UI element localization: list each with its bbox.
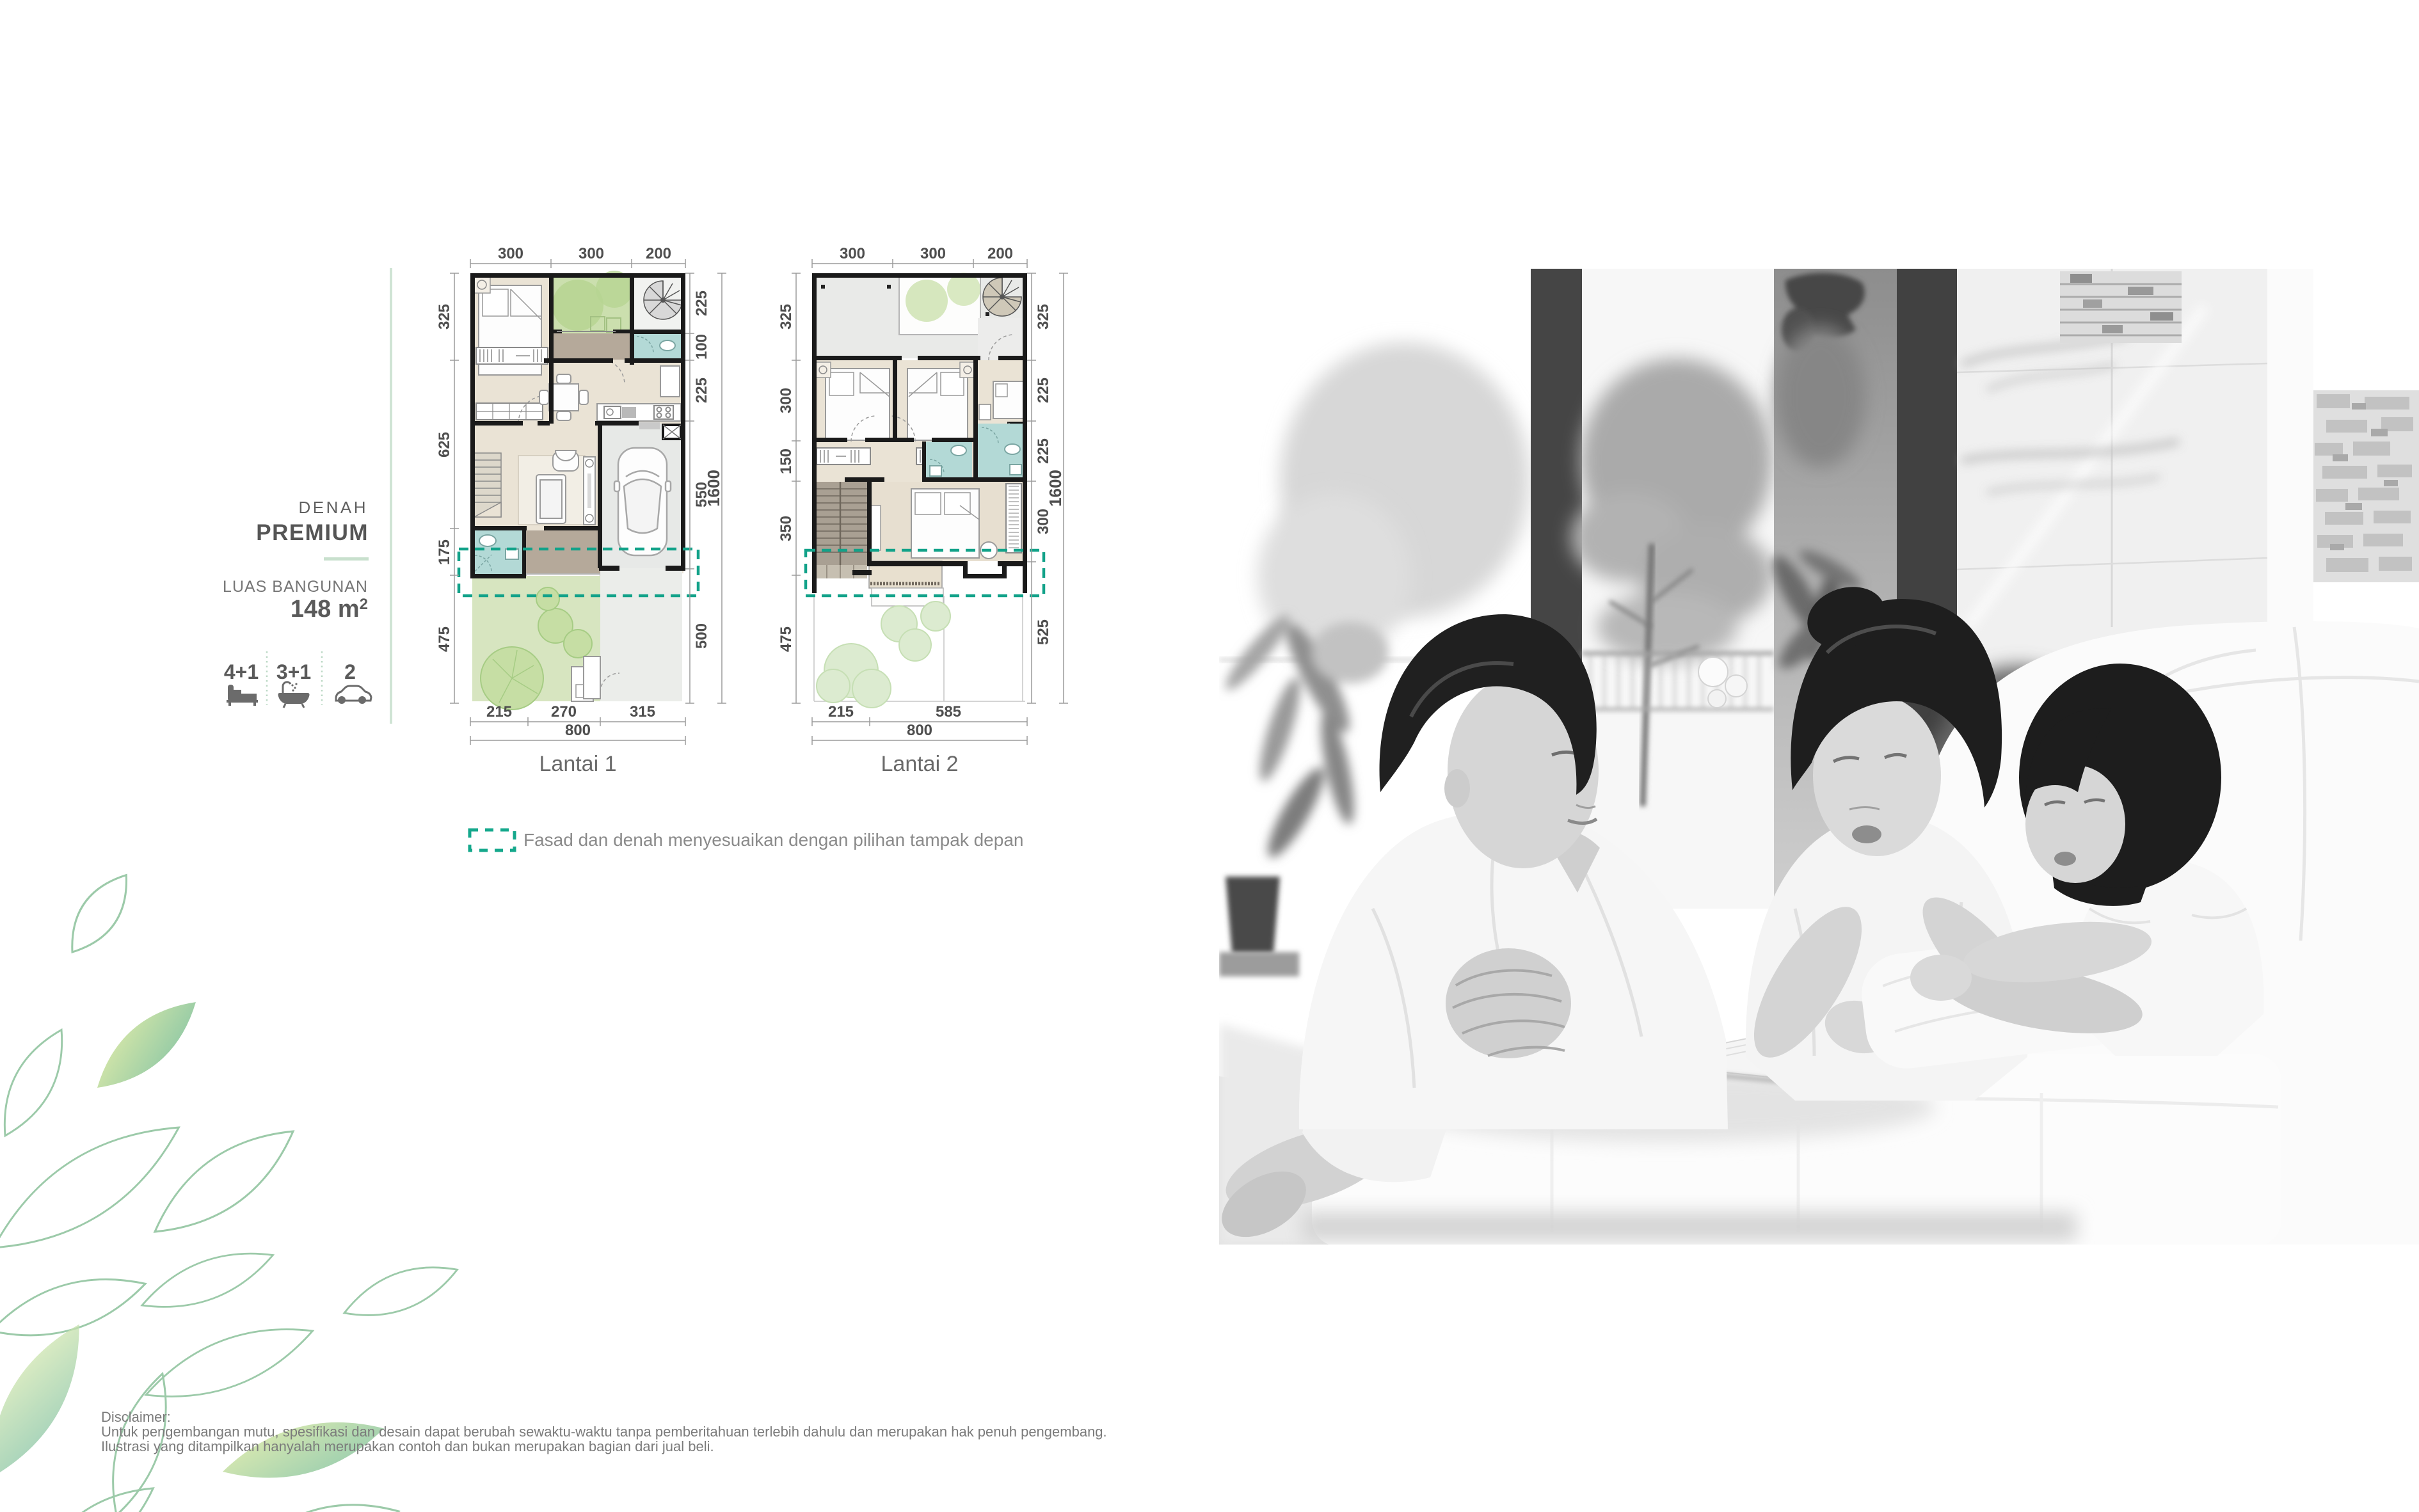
svg-text:Disclaimer:: Disclaimer: (101, 1409, 171, 1425)
svg-text:100: 100 (693, 334, 710, 360)
svg-text:525: 525 (1035, 619, 1052, 645)
svg-text:1600: 1600 (704, 470, 723, 507)
svg-text:2: 2 (344, 660, 356, 683)
svg-text:175: 175 (436, 539, 453, 565)
svg-text:Lantai 2: Lantai 2 (881, 752, 959, 776)
svg-text:225: 225 (693, 290, 710, 316)
svg-text:Ilustrasi yang ditampilkan han: Ilustrasi yang ditampilkan hanyalah meru… (101, 1438, 714, 1454)
svg-text:300: 300 (840, 245, 865, 262)
svg-text:4+1: 4+1 (224, 660, 259, 683)
svg-text:DENAH: DENAH (298, 498, 368, 517)
svg-text:148 m2: 148 m2 (291, 596, 368, 623)
svg-text:800: 800 (565, 722, 591, 739)
svg-text:625: 625 (436, 432, 453, 458)
svg-text:150: 150 (778, 449, 795, 474)
svg-text:315: 315 (630, 703, 655, 720)
svg-text:3+1: 3+1 (276, 660, 311, 683)
svg-text:300: 300 (1035, 509, 1052, 534)
svg-text:325: 325 (778, 304, 795, 330)
svg-text:225: 225 (1035, 378, 1052, 403)
svg-text:300: 300 (920, 245, 946, 262)
svg-text:Lantai 1: Lantai 1 (539, 752, 617, 776)
svg-text:350: 350 (778, 516, 795, 541)
svg-text:300: 300 (778, 388, 795, 413)
svg-text:225: 225 (693, 378, 710, 403)
svg-text:325: 325 (1035, 304, 1052, 330)
svg-text:200: 200 (987, 245, 1013, 262)
svg-text:200: 200 (646, 245, 671, 262)
svg-text:215: 215 (828, 703, 854, 720)
svg-text:Untuk pengembangan mutu, spesi: Untuk pengembangan mutu, spesifikasi dan… (101, 1424, 1107, 1440)
svg-text:475: 475 (436, 626, 453, 652)
svg-text:800: 800 (907, 722, 932, 739)
svg-text:Fasad dan denah menyesuaikan d: Fasad dan denah menyesuaikan dengan pili… (523, 830, 1023, 850)
svg-text:1600: 1600 (1046, 470, 1065, 507)
svg-text:325: 325 (436, 304, 453, 330)
svg-text:475: 475 (778, 626, 795, 652)
svg-text:300: 300 (498, 245, 523, 262)
svg-text:225: 225 (1035, 438, 1052, 464)
svg-text:270: 270 (551, 703, 577, 720)
svg-text:LUAS BANGUNAN: LUAS BANGUNAN (223, 578, 368, 596)
svg-text:500: 500 (693, 623, 710, 649)
svg-text:585: 585 (936, 703, 961, 720)
svg-text:215: 215 (486, 703, 512, 720)
svg-text:300: 300 (579, 245, 604, 262)
svg-text:PREMIUM: PREMIUM (256, 520, 369, 545)
